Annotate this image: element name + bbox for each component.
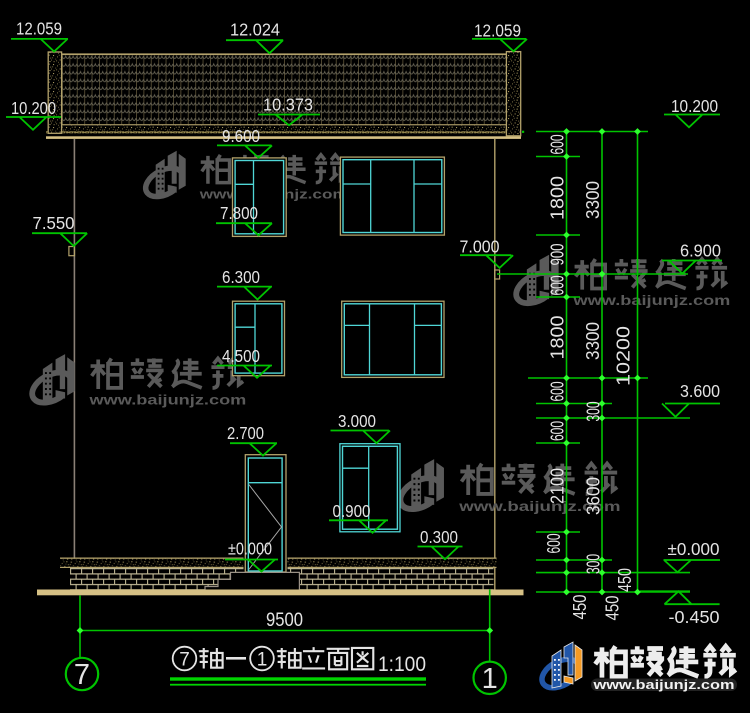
svg-text:0.900: 0.900 [333,501,371,521]
svg-text:7: 7 [179,650,190,671]
svg-text:10.200: 10.200 [671,96,718,116]
svg-text:1: 1 [482,663,498,695]
svg-text:3.600: 3.600 [680,381,720,401]
svg-text:6.300: 6.300 [222,267,260,287]
svg-text:1: 1 [257,650,268,671]
svg-text:7.550: 7.550 [33,213,75,233]
svg-text:9.600: 9.600 [222,126,260,146]
svg-text:1800: 1800 [548,316,568,360]
svg-text:±0.000: ±0.000 [668,539,720,559]
svg-text:7: 7 [74,659,90,691]
svg-text:12.024: 12.024 [230,20,280,40]
svg-text:300: 300 [584,402,604,422]
svg-text:10.373: 10.373 [263,95,313,115]
svg-text:7.800: 7.800 [220,203,258,223]
svg-text:12.059: 12.059 [16,19,62,39]
svg-text:www.baijunjz.com: www.baijunjz.com [88,392,246,407]
svg-text:2100: 2100 [548,468,568,504]
svg-text:3300: 3300 [583,322,603,360]
svg-text:600: 600 [548,421,568,441]
svg-text:450: 450 [615,568,635,592]
svg-text:2.700: 2.700 [227,423,264,443]
svg-text:0.300: 0.300 [420,527,458,547]
svg-text:1800: 1800 [548,176,568,220]
svg-text:www.baijunjz.com: www.baijunjz.com [592,678,734,692]
svg-text:6.900: 6.900 [680,241,721,261]
svg-text:1:100: 1:100 [378,653,426,676]
svg-text:9500: 9500 [266,610,303,631]
svg-text:±0.000: ±0.000 [228,539,272,559]
svg-text:600: 600 [544,534,564,554]
svg-text:450: 450 [570,595,590,620]
svg-text:300: 300 [584,554,604,574]
svg-text:900: 900 [548,244,568,266]
svg-text:450: 450 [603,596,623,621]
svg-text:10.200: 10.200 [11,98,56,118]
svg-text:12.059: 12.059 [474,21,521,41]
svg-text:600: 600 [548,382,568,402]
svg-text:4.500: 4.500 [222,346,260,366]
svg-text:3600: 3600 [584,477,604,515]
svg-text:www.baijunjz.com: www.baijunjz.com [572,293,730,308]
svg-text:3300: 3300 [583,181,603,219]
svg-text:600: 600 [548,276,568,296]
svg-text:10200: 10200 [614,326,634,386]
svg-text:7.000: 7.000 [460,237,500,257]
svg-text:-0.450: -0.450 [669,607,720,627]
svg-text:600: 600 [548,135,568,155]
svg-text:3.000: 3.000 [338,411,376,431]
